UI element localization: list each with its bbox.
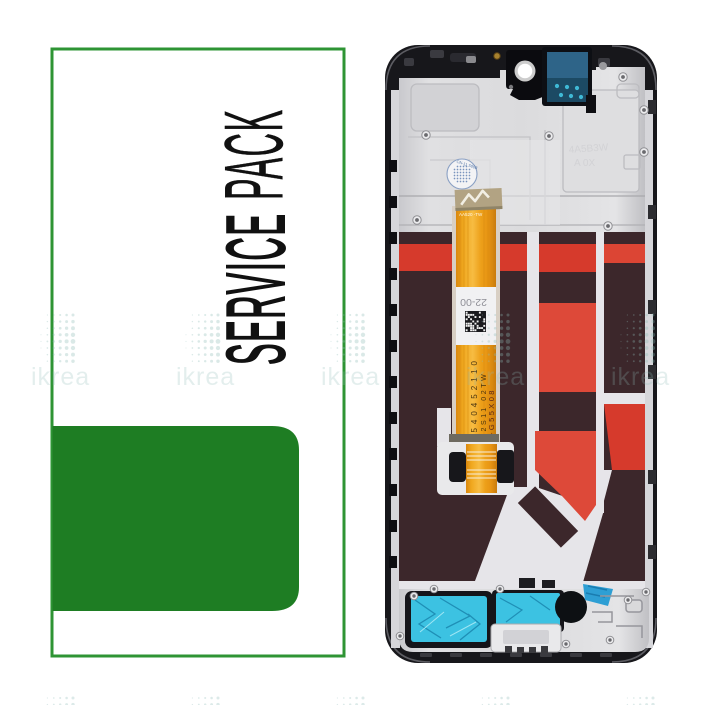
svg-text:AA520 -TW: AA520 -TW bbox=[459, 212, 483, 217]
svg-text:PACK: PACK bbox=[208, 110, 300, 200]
svg-text:A 0X: A 0X bbox=[574, 158, 595, 169]
svg-text:22-00: 22-00 bbox=[460, 296, 487, 308]
